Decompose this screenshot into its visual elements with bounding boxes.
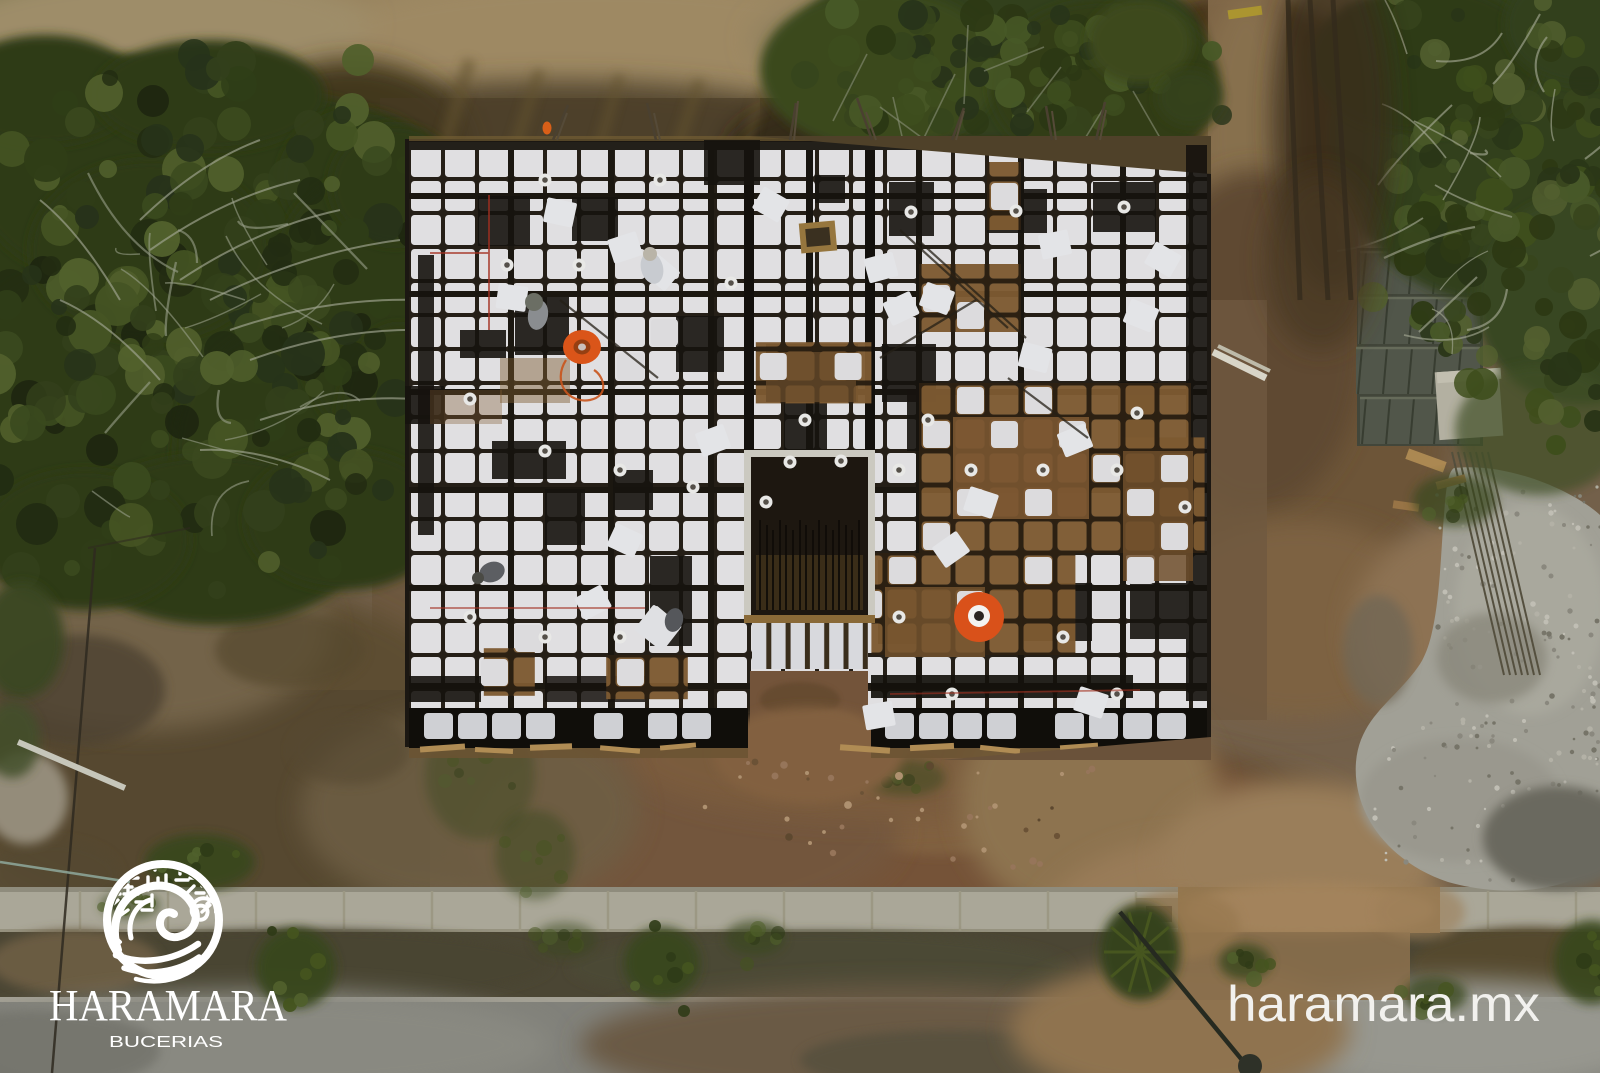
svg-text:haramara.mx: haramara.mx	[1227, 976, 1540, 1032]
svg-text:HARAMARA: HARAMARA	[49, 981, 287, 1030]
svg-text:BUCERIAS: BUCERIAS	[109, 1034, 223, 1051]
